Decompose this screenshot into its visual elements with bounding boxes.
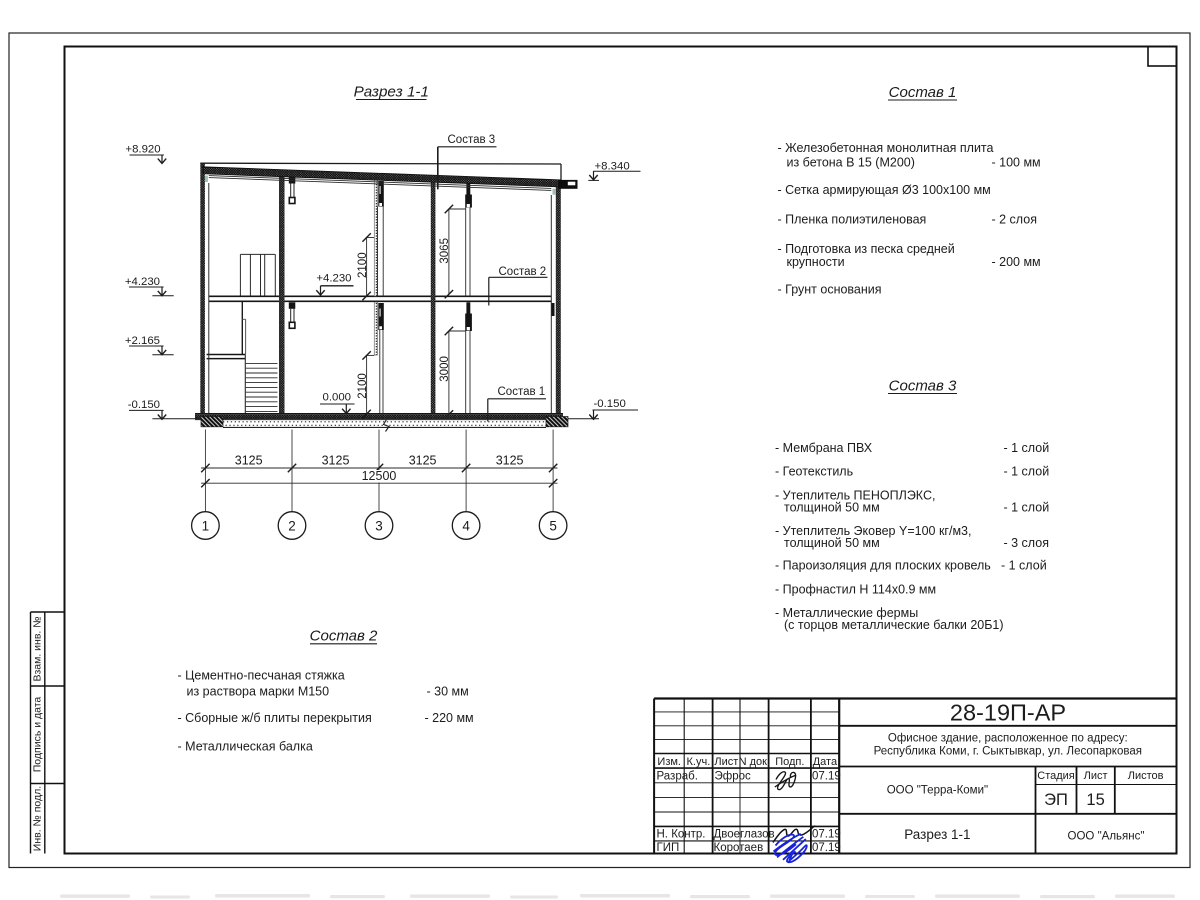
svg-text:Н. Контр.: Н. Контр. [657, 829, 706, 841]
svg-text:3: 3 [375, 518, 383, 533]
svg-text:толщиной 50 мм: толщиной 50 мм [784, 501, 880, 515]
svg-text:Лист: Лист [1084, 770, 1108, 782]
svg-text:Разрез 1-1: Разрез 1-1 [354, 84, 429, 101]
svg-text:Изм.: Изм. [657, 756, 681, 768]
svg-text:- Металлическая балка: - Металлическая балка [178, 740, 313, 754]
svg-text:- 1 слой: - 1 слой [1001, 559, 1047, 573]
svg-text:- 200 мм: - 200 мм [992, 255, 1041, 269]
svg-text:- 30 мм: - 30 мм [427, 685, 469, 699]
svg-text:- 1 слой: - 1 слой [1004, 441, 1050, 455]
svg-text:Двоеглазов: Двоеглазов [714, 829, 775, 841]
svg-text:Коротаев: Коротаев [714, 842, 764, 854]
svg-text:Состав 2: Состав 2 [310, 628, 378, 645]
svg-text:3125: 3125 [496, 454, 524, 468]
svg-text:Состав 3: Состав 3 [448, 134, 496, 146]
svg-text:3000: 3000 [439, 356, 451, 382]
svg-text:- 3 слоя: - 3 слоя [1004, 536, 1049, 550]
svg-text:Стадия: Стадия [1037, 770, 1075, 782]
svg-text:- Сборные ж/б плиты перекрытия: - Сборные ж/б плиты перекрытия [178, 711, 372, 725]
svg-text:07.19: 07.19 [812, 770, 841, 782]
svg-text:2100: 2100 [357, 252, 369, 278]
svg-text:- Пароизоляция для плоских кро: - Пароизоляция для плоских кровель [775, 559, 991, 573]
svg-text:- Подготовка из песка средней: - Подготовка из песка средней [778, 242, 955, 256]
svg-text:- 1 слой: - 1 слой [1004, 465, 1050, 479]
svg-text:толщиной 50 мм: толщиной 50 мм [784, 536, 880, 550]
svg-text:5: 5 [549, 518, 557, 533]
svg-text:3065: 3065 [439, 238, 451, 264]
svg-text:3125: 3125 [235, 454, 263, 468]
svg-text:N док.: N док. [739, 756, 770, 768]
svg-text:Состав 1: Состав 1 [498, 386, 546, 398]
svg-text:- Грунт основания: - Грунт основания [778, 283, 882, 297]
svg-text:- Железобетонная монолитная п: - Железобетонная монолитная плита [778, 141, 994, 155]
svg-text:3125: 3125 [409, 454, 437, 468]
svg-text:ООО "Терра-Коми": ООО "Терра-Коми" [887, 785, 988, 797]
svg-text:12500: 12500 [362, 469, 397, 483]
svg-text:ЭП: ЭП [1044, 791, 1068, 809]
svg-text:15: 15 [1086, 791, 1104, 809]
svg-text:28-19П-АР: 28-19П-АР [950, 700, 1066, 726]
svg-text:Состав 1: Состав 1 [889, 84, 957, 101]
svg-text:- 220 мм: - 220 мм [425, 711, 474, 725]
svg-text:+2.165: +2.165 [125, 335, 160, 347]
svg-text:Взам. инв. №: Взам. инв. № [31, 616, 43, 681]
svg-text:- Профнастил Н 114х0.9 мм: - Профнастил Н 114х0.9 мм [775, 582, 936, 596]
svg-text:Состав 2: Состав 2 [499, 266, 547, 278]
svg-text:- 100 мм: - 100 мм [992, 156, 1041, 170]
svg-text:- 2 слоя: - 2 слоя [992, 213, 1037, 227]
svg-text:(с торцов металлические балки: (с торцов металлические балки 20Б1) [784, 618, 1004, 632]
svg-text:-0.150: -0.150 [594, 398, 626, 410]
svg-text:Состав 3: Состав 3 [889, 378, 957, 395]
svg-text:+4.230: +4.230 [125, 276, 160, 288]
svg-text:из бетона В 15 (М200): из бетона В 15 (М200) [787, 156, 915, 170]
svg-text:Эфрос: Эфрос [715, 770, 752, 782]
svg-text:Подп.: Подп. [775, 756, 804, 768]
svg-text:2100: 2100 [357, 373, 369, 399]
svg-text:ООО "Альянс": ООО "Альянс" [1068, 831, 1145, 843]
svg-text:Республика Коми, г. Сыктывкар,: Республика Коми, г. Сыктывкар, ул. Лесоп… [874, 746, 1142, 758]
svg-text:- Геотекстиль: - Геотекстиль [775, 465, 853, 479]
svg-text:- Пленка полиэтиленовая: - Пленка полиэтиленовая [778, 213, 927, 227]
svg-text:3125: 3125 [322, 454, 350, 468]
svg-text:07.19: 07.19 [812, 829, 841, 841]
svg-text:- Сетка армирующая Ø3 100х100: - Сетка армирующая Ø3 100х100 мм [778, 183, 991, 197]
svg-text:- 1 слой: - 1 слой [1004, 501, 1050, 515]
svg-text:крупности: крупности [787, 255, 845, 269]
svg-text:0.000: 0.000 [322, 392, 351, 404]
svg-text:1: 1 [202, 518, 210, 533]
svg-text:4: 4 [462, 518, 470, 533]
svg-text:ГИП: ГИП [657, 842, 680, 854]
svg-text:2: 2 [288, 518, 296, 533]
svg-text:из раствора марки М150: из раствора марки М150 [187, 685, 330, 699]
svg-text:Дата: Дата [813, 756, 838, 768]
svg-text:Лист: Лист [714, 756, 738, 768]
svg-text:+8.340: +8.340 [595, 160, 630, 172]
svg-text:-0.150: -0.150 [128, 399, 160, 411]
svg-text:К.уч.: К.уч. [687, 756, 711, 768]
svg-text:Разрез 1-1: Разрез 1-1 [904, 827, 970, 842]
svg-text:Подпись и дата: Подпись и дата [31, 697, 43, 773]
svg-text:- Цементно-песчаная стяжка: - Цементно-песчаная стяжка [178, 669, 345, 683]
svg-text:Листов: Листов [1128, 770, 1164, 782]
svg-text:+4.230: +4.230 [316, 273, 351, 285]
svg-text:07.19: 07.19 [812, 842, 841, 854]
svg-text:Разраб.: Разраб. [657, 770, 698, 782]
svg-text:+8.920: +8.920 [125, 144, 160, 156]
svg-text:Офисное здание, расположенное: Офисное здание, расположенное по адресу: [888, 733, 1128, 745]
svg-text:- Мембрана ПВХ: - Мембрана ПВХ [775, 441, 873, 455]
svg-text:Инв. № подл.: Инв. № подл. [31, 786, 43, 851]
